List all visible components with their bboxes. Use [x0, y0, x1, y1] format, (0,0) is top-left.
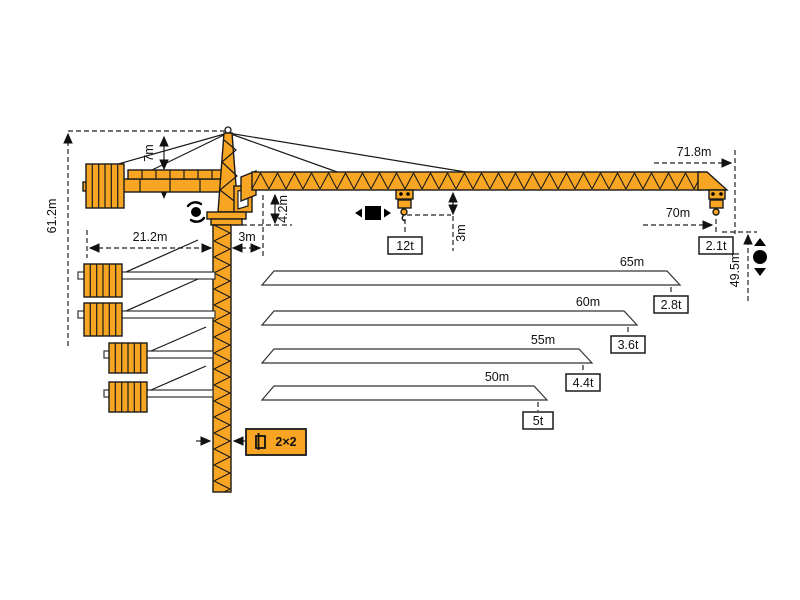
tie-line	[151, 327, 206, 351]
jib-variant: 50m 5t	[262, 370, 553, 429]
jib-length-label: 60m	[576, 295, 600, 309]
diagram-canvas: 61.2m 7m	[0, 0, 800, 600]
jib-variant-outline	[262, 349, 592, 363]
tip-trolley-hook	[709, 190, 725, 215]
hook-block	[710, 200, 723, 208]
dimension-counter-jib-radius: 21.2m	[87, 230, 211, 258]
hook	[713, 209, 719, 215]
hook-approach-label: 3m	[454, 224, 468, 241]
tie-line	[126, 240, 198, 272]
slew-offset-label: 3m	[238, 230, 255, 244]
max-capacity-callout: 12t	[388, 215, 451, 254]
jib-tip	[698, 172, 727, 190]
jib-variant-outline	[262, 311, 637, 325]
jib-section-height-label: 4.2m	[276, 195, 290, 223]
tie-line	[126, 279, 198, 311]
capacity-label: 5t	[533, 414, 544, 428]
hook-height-label: 49.5m	[728, 253, 742, 288]
max-capacity-label: 12t	[396, 239, 414, 253]
counter-jib-girder	[110, 179, 228, 192]
tip-capacity-callout: 2.1t	[699, 219, 733, 254]
hoist-up-down-icon	[753, 238, 767, 276]
overall-height-label: 61.2m	[45, 199, 59, 234]
turntable-lower	[211, 219, 242, 225]
capacity-label: 3.6t	[618, 338, 639, 352]
jib-tie-line	[228, 133, 490, 176]
dimension-slew-offset: 3m	[233, 230, 260, 248]
hook-block	[398, 200, 411, 208]
jib-variant-outline	[262, 271, 680, 285]
max-hook-radius-label: 70m	[666, 206, 690, 220]
tower-section-label: 2×2	[275, 435, 296, 449]
counter-jib-radius-label: 21.2m	[133, 230, 168, 244]
jib-variant: 55m 4.4t	[262, 333, 600, 391]
jib-tip-radius-label: 71.8m	[677, 145, 712, 159]
tie-line	[151, 366, 206, 390]
jib-length-label: 55m	[531, 333, 555, 347]
jib-length-label: 65m	[620, 255, 644, 269]
trolley-hook	[396, 190, 413, 221]
capacity-label: 4.4t	[573, 376, 594, 390]
tip-capacity-label: 2.1t	[706, 239, 727, 253]
dimension-hook-approach: 3m	[453, 193, 468, 251]
jib-length-label: 50m	[485, 370, 509, 384]
hook	[401, 209, 407, 215]
trolley-travel-icon	[355, 206, 391, 220]
jib-variant: 60m 3.6t	[262, 295, 645, 353]
turntable-upper	[207, 212, 246, 219]
slewing-rotation-icon	[188, 202, 204, 221]
counterweight-block	[86, 164, 124, 208]
tower-head-label: 7m	[142, 144, 156, 161]
crane-load-diagram: 61.2m 7m	[0, 0, 800, 600]
main-jib	[241, 171, 727, 201]
jib-tie-line	[228, 133, 340, 173]
jib-variant: 65m 2.8t	[262, 255, 688, 313]
dimension-max-hook-radius: 70m	[643, 206, 712, 225]
capacity-label: 2.8t	[661, 298, 682, 312]
jib-variant-outline	[262, 386, 547, 400]
counter-jib-walkway	[128, 170, 228, 179]
tower-mast	[213, 225, 231, 492]
counter-jib	[83, 164, 228, 208]
apex-pulley	[225, 127, 231, 133]
dimension-arrow	[161, 192, 167, 199]
trolley-carriage	[396, 190, 413, 199]
